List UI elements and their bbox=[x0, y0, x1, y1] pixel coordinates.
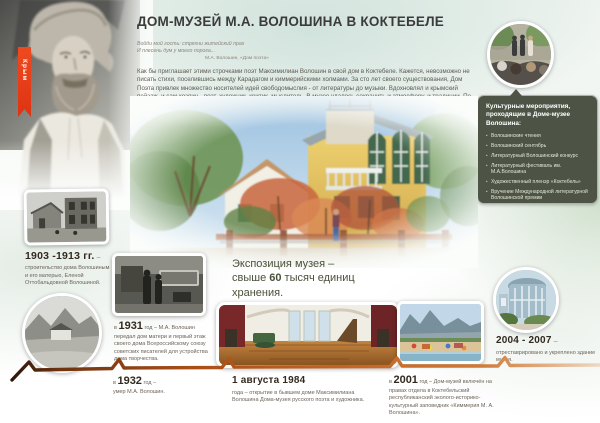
interior-photo-1931 bbox=[112, 253, 206, 316]
timeline-1903-block: 1903 -1913 гг. – строительство дома Воло… bbox=[25, 249, 113, 287]
event-item: Волошинские чтения bbox=[486, 133, 589, 139]
year-1903: 1903 -1913 гг. bbox=[25, 250, 94, 262]
museum-building-photo bbox=[493, 267, 559, 333]
events-list: Волошинские чтения Волошинский сентябрь … bbox=[486, 133, 589, 202]
events-panel-title: Культурные мероприятия, проходящие в Дом… bbox=[486, 103, 589, 128]
event-item: Волошинский сентябрь bbox=[486, 143, 589, 149]
text-1903: строительство дома Волошиным и его матер… bbox=[25, 265, 109, 286]
epigraph-line2: И плесень дум у моего порога... bbox=[137, 48, 215, 54]
house-watercolor-painting bbox=[130, 96, 478, 268]
infographic-poster: Крым ДОМ-МУЗЕЙ М.А. ВОЛОШИНА В КОКТЕБЕЛЕ… bbox=[0, 0, 600, 423]
exposition-count: 60 bbox=[269, 272, 281, 284]
crimea-ribbon-label: Крым bbox=[21, 59, 28, 81]
text-1984: года – открытие в бывшем доме Максимилиа… bbox=[232, 390, 364, 403]
timeline-line bbox=[0, 350, 600, 385]
epigraph-attribution: М.А. Волошин, «Дом поэта» bbox=[205, 56, 377, 63]
event-item: Литературный Волошинский конкурс bbox=[486, 153, 589, 159]
event-item: Литературный фестиваль им. М.А.Волошина bbox=[486, 163, 589, 176]
events-panel: Культурные мероприятия, проходящие в Дом… bbox=[477, 95, 598, 204]
ceremony-photo bbox=[487, 21, 554, 88]
event-item: Вручение Международной литературной Воло… bbox=[486, 189, 589, 202]
epigraph: Войди мой гость: стряхни житейский прах … bbox=[137, 41, 377, 63]
epigraph-line1: Войди мой гость: стряхни житейский прах bbox=[137, 41, 244, 47]
page-title: ДОМ-МУЗЕЙ М.А. ВОЛОШИНА В КОКТЕБЕЛЕ bbox=[137, 14, 482, 29]
construction-photo-1903 bbox=[24, 188, 110, 245]
text-1932: умер М.А. Волошин. bbox=[113, 389, 165, 395]
year-2004-2007: 2004 - 2007 bbox=[496, 335, 552, 346]
exposition-note: Экспозиция музея – свыше 60 тысяч единиц… bbox=[232, 257, 372, 300]
event-item: Художественный пленэр «Коктебель» bbox=[486, 179, 589, 185]
year-1931: 1931 bbox=[118, 320, 142, 332]
crimea-ribbon: Крым bbox=[18, 47, 31, 117]
